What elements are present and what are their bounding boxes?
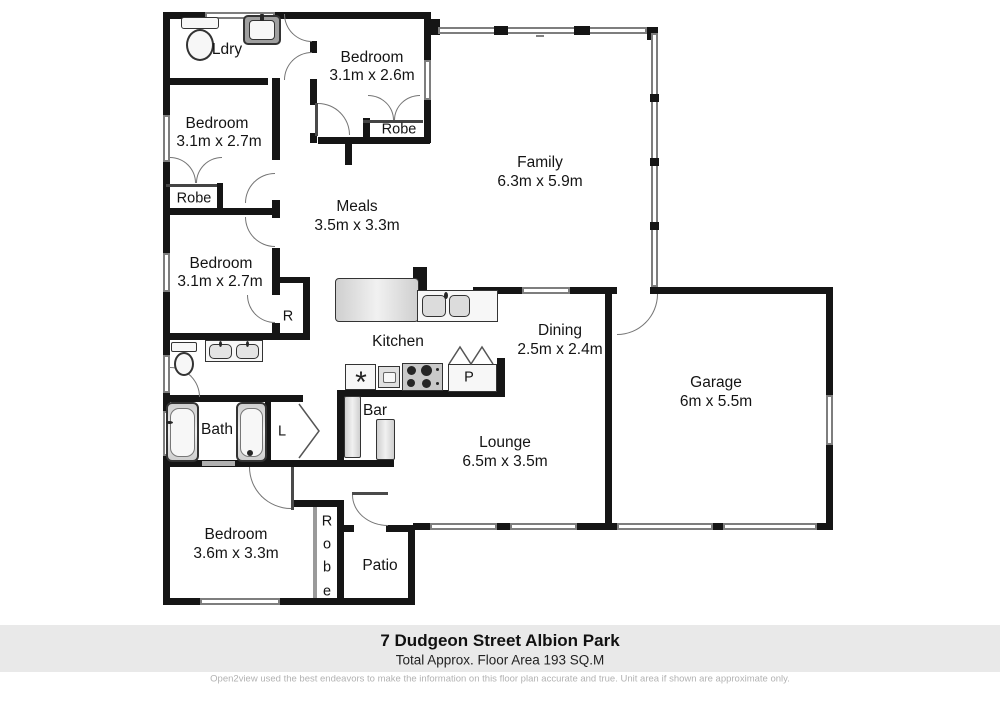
closet-label-robe-bed4: Robe — [321, 511, 334, 604]
room-dims-lounge: 6.5m x 3.5m — [462, 453, 547, 471]
room-label-kitchen: Kitchen — [372, 333, 424, 351]
door-swing — [318, 103, 350, 135]
wall — [337, 500, 344, 605]
window — [200, 598, 280, 605]
bar-bench — [376, 419, 395, 460]
toilet-icon — [171, 342, 197, 352]
room-label-dining: Dining — [538, 322, 582, 340]
wall — [272, 248, 280, 295]
robe-door-swing — [368, 95, 394, 120]
footer-floor-area: Total Approx. Floor Area 193 SQ.M — [396, 653, 605, 668]
bifold-doors — [0, 0, 1000, 707]
room-dims-bedroom2: 3.1m x 2.7m — [176, 133, 261, 151]
window — [522, 287, 570, 294]
window — [163, 355, 170, 393]
window — [617, 523, 713, 530]
wall — [280, 277, 303, 283]
door-swing — [245, 173, 275, 203]
window — [424, 60, 431, 100]
door-swing — [284, 52, 312, 80]
robe-shelf — [166, 184, 222, 187]
window — [438, 27, 647, 34]
door-leaf — [315, 103, 318, 136]
wall — [303, 277, 310, 340]
window-mullion — [494, 26, 508, 35]
tap-icon — [219, 341, 222, 347]
bar-bench — [344, 396, 361, 458]
toilet-icon — [174, 352, 194, 376]
burner-dot — [436, 368, 439, 371]
footer-disclaimer: Open2view used the best endeavors to mak… — [210, 674, 790, 685]
wall — [163, 12, 170, 605]
kitchen-bench — [335, 278, 419, 322]
burner-icon — [407, 366, 416, 375]
shower-head-icon — [247, 450, 253, 456]
wall — [340, 525, 354, 532]
window — [510, 523, 577, 530]
room-label-bedroom3: Bedroom — [190, 255, 253, 273]
window — [430, 523, 497, 530]
wall — [163, 333, 310, 340]
window-mullion — [574, 26, 590, 35]
wall — [337, 460, 394, 467]
door-swing — [284, 14, 312, 42]
room-dims-bedroom1: 3.1m x 2.6m — [329, 67, 414, 85]
robe-door-swing — [170, 157, 196, 183]
closet-label-pantry: P — [464, 370, 474, 387]
room-label-bedroom1: Bedroom — [341, 49, 404, 67]
window — [163, 115, 170, 162]
bath-sliding-door — [202, 461, 235, 466]
room-label-bedroom4: Bedroom — [205, 526, 268, 544]
tap-icon — [444, 292, 448, 299]
door-swing — [617, 294, 658, 335]
wall — [217, 183, 223, 213]
burner-icon — [407, 379, 415, 387]
room-label-bedroom2: Bedroom — [186, 115, 249, 133]
room-label-patio: Patio — [362, 557, 397, 575]
wall — [163, 78, 268, 85]
room-dims-dining: 2.5m x 2.4m — [517, 341, 602, 359]
robe-door-swing — [196, 157, 222, 183]
wall — [497, 358, 505, 397]
tap-icon — [166, 421, 173, 424]
footer-address: 7 Dudgeon Street Albion Park — [380, 631, 619, 651]
wall — [345, 143, 352, 165]
room-label-lounge: Lounge — [479, 434, 531, 452]
toilet-icon — [181, 17, 219, 29]
wall — [310, 79, 317, 105]
sink-icon — [422, 295, 446, 317]
door-swing — [352, 495, 388, 526]
room-dims-bedroom3: 3.1m x 2.7m — [177, 273, 262, 291]
burner-icon — [421, 365, 432, 376]
tap-icon — [246, 341, 249, 347]
door-leaf — [352, 492, 388, 495]
room-label-bar: Bar — [363, 402, 387, 420]
tap-icon — [260, 14, 264, 21]
window-mullion — [650, 222, 659, 230]
door-leaf — [291, 467, 294, 510]
room-dims-meals: 3.5m x 3.3m — [314, 217, 399, 235]
room-label-ldry: Ldry — [212, 41, 242, 59]
room-label-bath: Bath — [201, 421, 233, 439]
wall — [650, 287, 833, 294]
robe-door-swing — [394, 95, 420, 120]
room-label-garage: Garage — [690, 374, 742, 392]
microwave-icon — [383, 372, 396, 383]
bathtub-icon — [170, 408, 195, 457]
door-swing — [249, 467, 291, 509]
window — [723, 523, 817, 530]
closet-label-r: R — [283, 309, 293, 326]
wall — [605, 287, 612, 530]
window — [826, 395, 833, 445]
sink-icon — [449, 295, 470, 317]
window — [163, 253, 170, 292]
room-dims-bedroom4: 3.6m x 3.3m — [193, 545, 278, 563]
burner-dot — [436, 382, 439, 385]
wall — [272, 78, 280, 160]
room-label-family: Family — [517, 154, 563, 172]
closet-label-linen: L — [278, 424, 286, 441]
closet-label-robe-bed1: Robe — [382, 122, 417, 139]
wall — [408, 525, 415, 605]
room-dims-family: 6.3m x 5.9m — [497, 173, 582, 191]
laundry-tub-icon — [249, 20, 275, 40]
door-swing — [247, 295, 275, 323]
wall — [337, 390, 344, 467]
burner-icon — [422, 379, 431, 388]
door-swing — [245, 217, 275, 247]
closet-label-robe-bed2: Robe — [177, 191, 212, 208]
room-dims-garage: 6m x 5.5m — [680, 393, 752, 411]
window-mullion — [650, 94, 659, 102]
floor-plan: * Ldry Bedroom 3.1m x 2.6m Bedroom 3.1m … — [0, 0, 1000, 707]
toilet-icon — [186, 29, 214, 61]
robe-sliding-door — [313, 507, 317, 598]
room-label-meals: Meals — [336, 198, 377, 216]
window-mullion — [650, 158, 659, 166]
wall — [340, 598, 415, 605]
